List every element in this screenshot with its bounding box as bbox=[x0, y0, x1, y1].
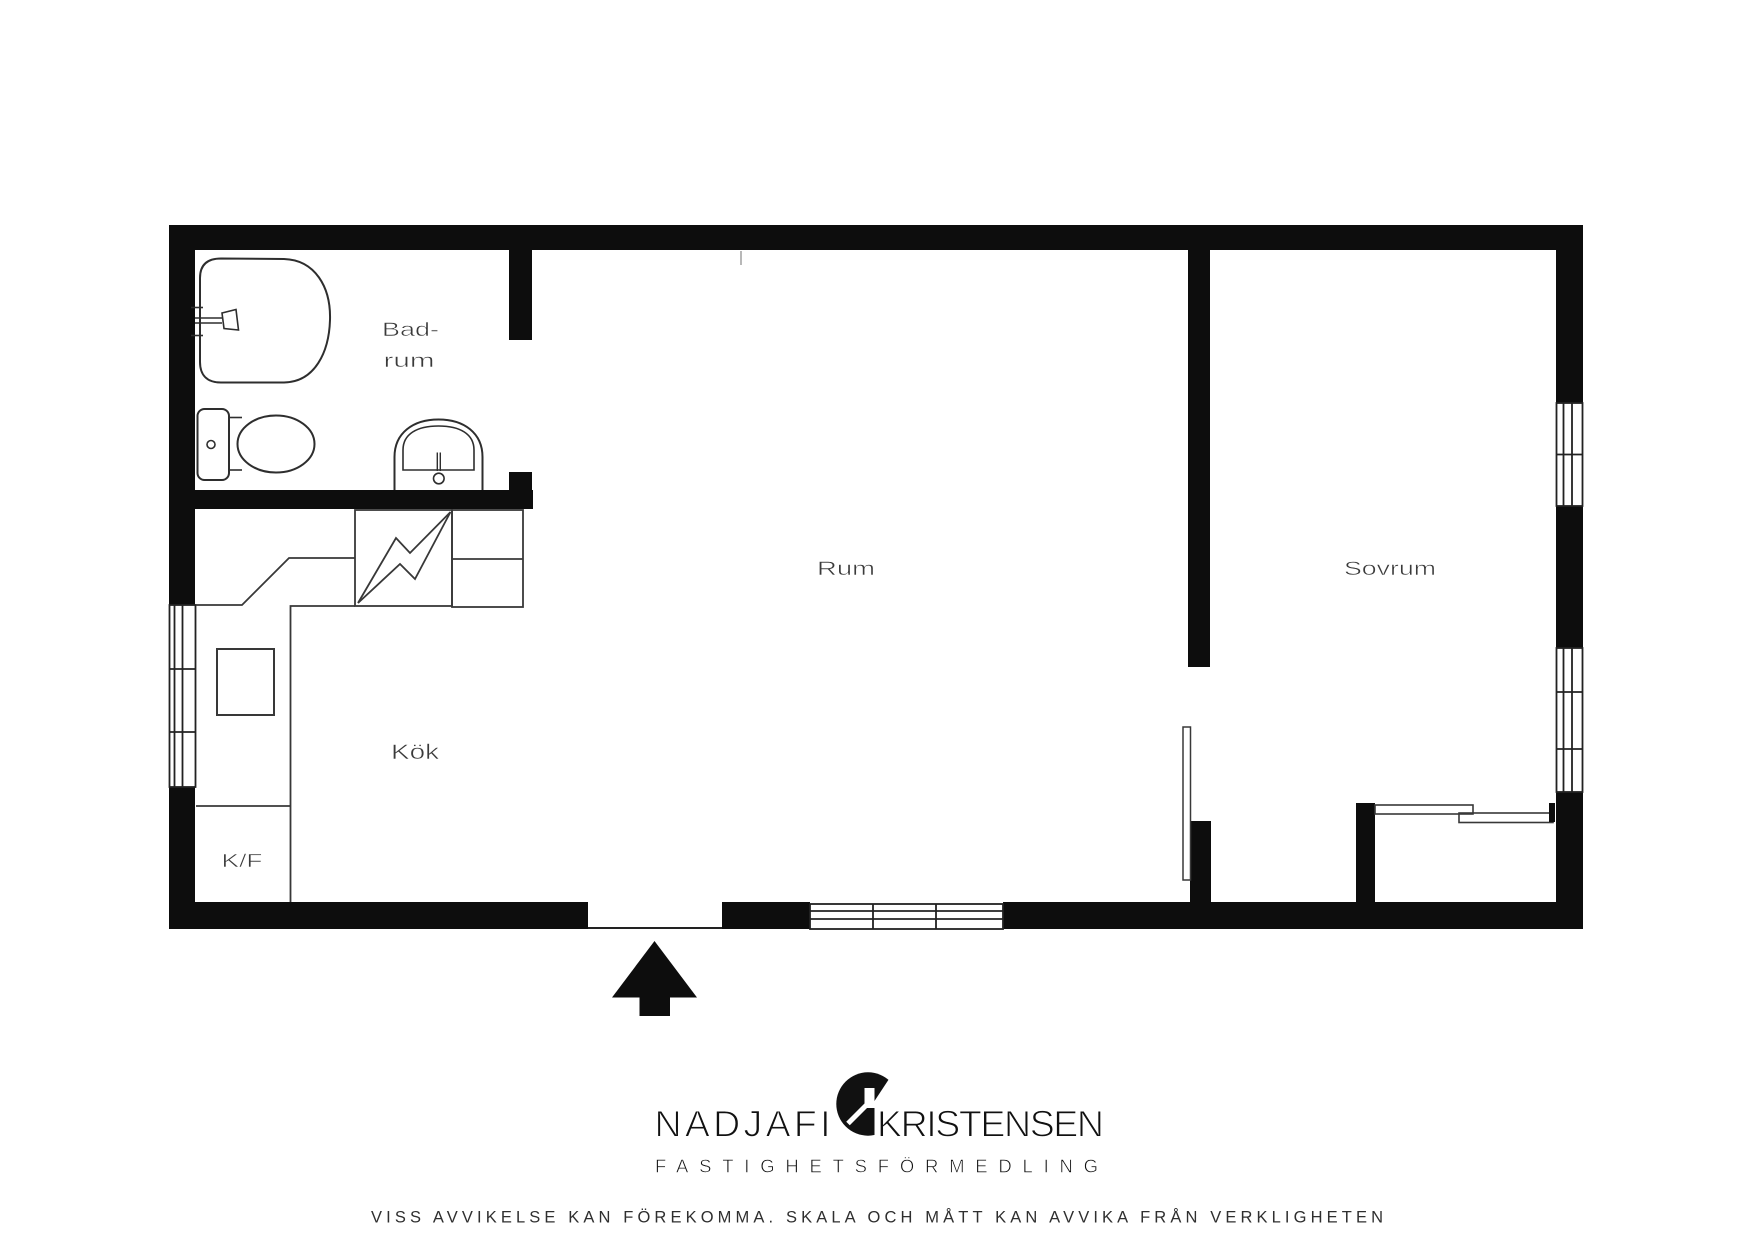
svg-text:Bad-: Bad- bbox=[382, 319, 439, 341]
svg-text:Rum: Rum bbox=[817, 558, 875, 580]
svg-text:VISS AVVIKELSE KAN FÖREKOMMA.: VISS AVVIKELSE KAN FÖREKOMMA. SKALA OCH … bbox=[371, 1208, 1383, 1227]
svg-text:Kök: Kök bbox=[391, 741, 440, 764]
svg-text:K/F: K/F bbox=[222, 851, 263, 871]
svg-text:Sovrum: Sovrum bbox=[1344, 558, 1436, 580]
svg-text:KRISTENSEN: KRISTENSEN bbox=[877, 1103, 1104, 1145]
svg-text:rum: rum bbox=[384, 350, 435, 372]
